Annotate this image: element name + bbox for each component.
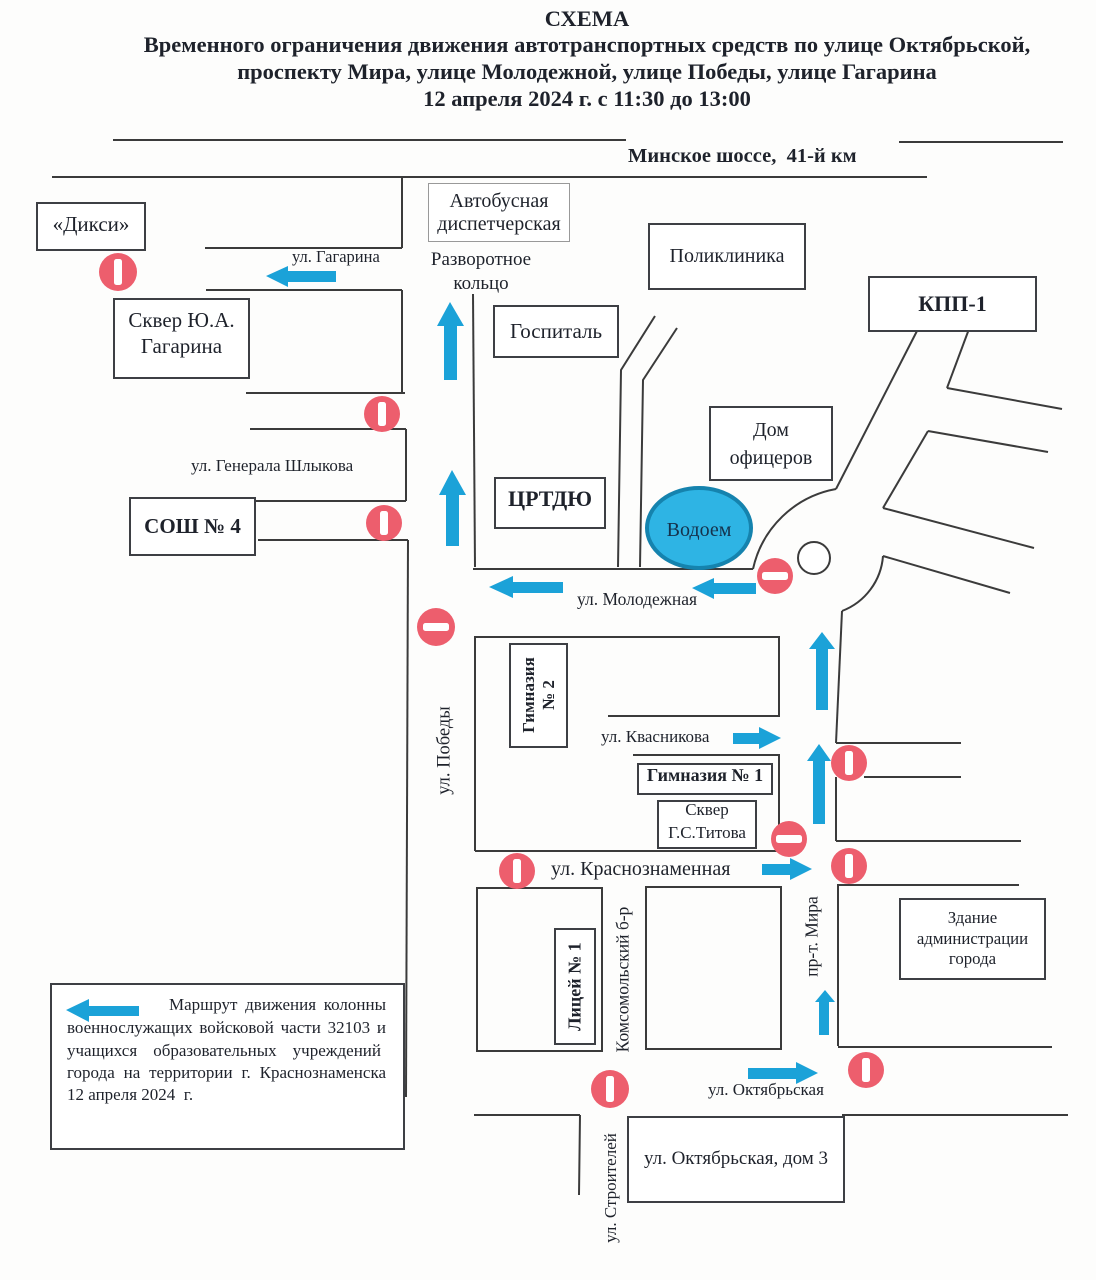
svg-text:Водоем: Водоем	[667, 519, 732, 541]
